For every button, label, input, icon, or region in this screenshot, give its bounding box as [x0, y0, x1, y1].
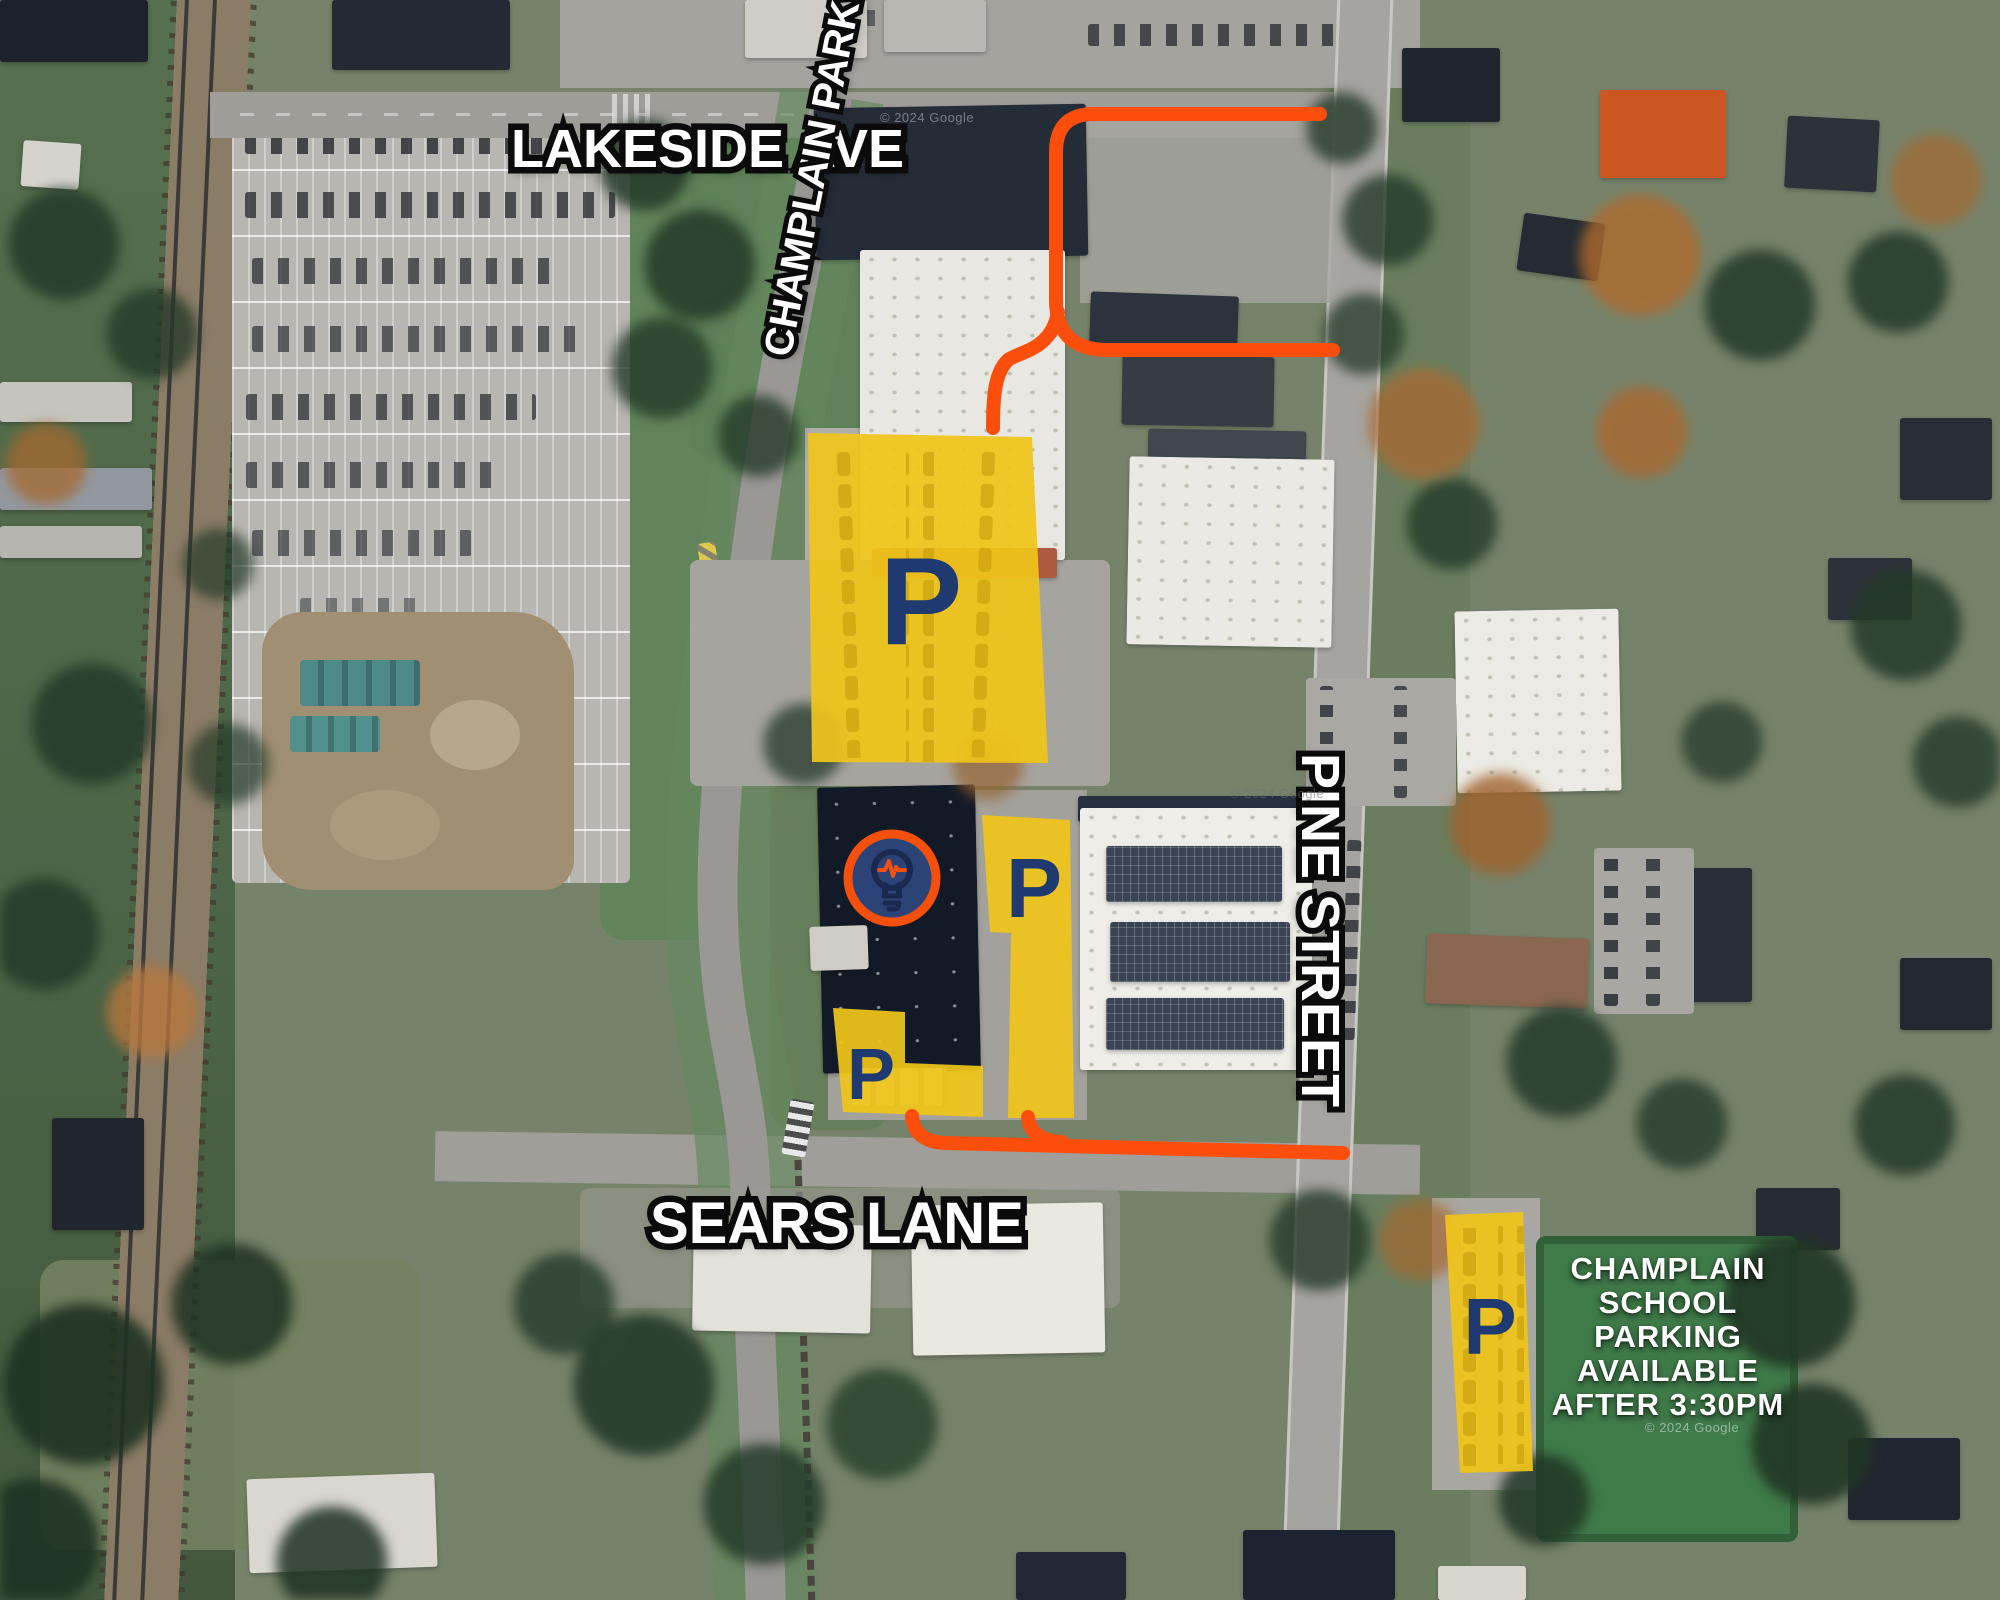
parking-marker-rear: P: [847, 1039, 895, 1111]
school-note-line: AVAILABLE: [1538, 1354, 1798, 1388]
lightbulb-pulse-icon: [840, 826, 944, 930]
generator-logo: [840, 826, 944, 930]
school-note-line: CHAMPLAIN: [1538, 1252, 1798, 1286]
imagery-watermark: © 2024 Google: [880, 110, 974, 125]
annotated-satellite-map: P P P P LAKESIDE AVE LAKESIDE AVE CHAMPL…: [0, 0, 2000, 1600]
route-line-sears: [912, 1116, 1343, 1153]
imagery-watermark: © 2024 Google: [1230, 786, 1324, 801]
school-note-line: SCHOOL: [1538, 1286, 1798, 1320]
route-line-sears-spur: [1028, 1117, 1062, 1142]
school-parking-note: CHAMPLAIN SCHOOL PARKING AVAILABLE AFTER…: [1538, 1252, 1798, 1422]
school-note-line: AFTER 3:30PM: [1538, 1388, 1798, 1422]
imagery-watermark: © 2024 Google: [1645, 1420, 1739, 1435]
route-line-north: [1056, 114, 1333, 350]
parking-marker-side: P: [1006, 846, 1062, 930]
parking-marker-school: P: [1463, 1287, 1516, 1367]
school-note-line: PARKING: [1538, 1320, 1798, 1354]
parking-marker-main: P: [880, 540, 963, 664]
route-line-lot-entry: [993, 312, 1058, 428]
